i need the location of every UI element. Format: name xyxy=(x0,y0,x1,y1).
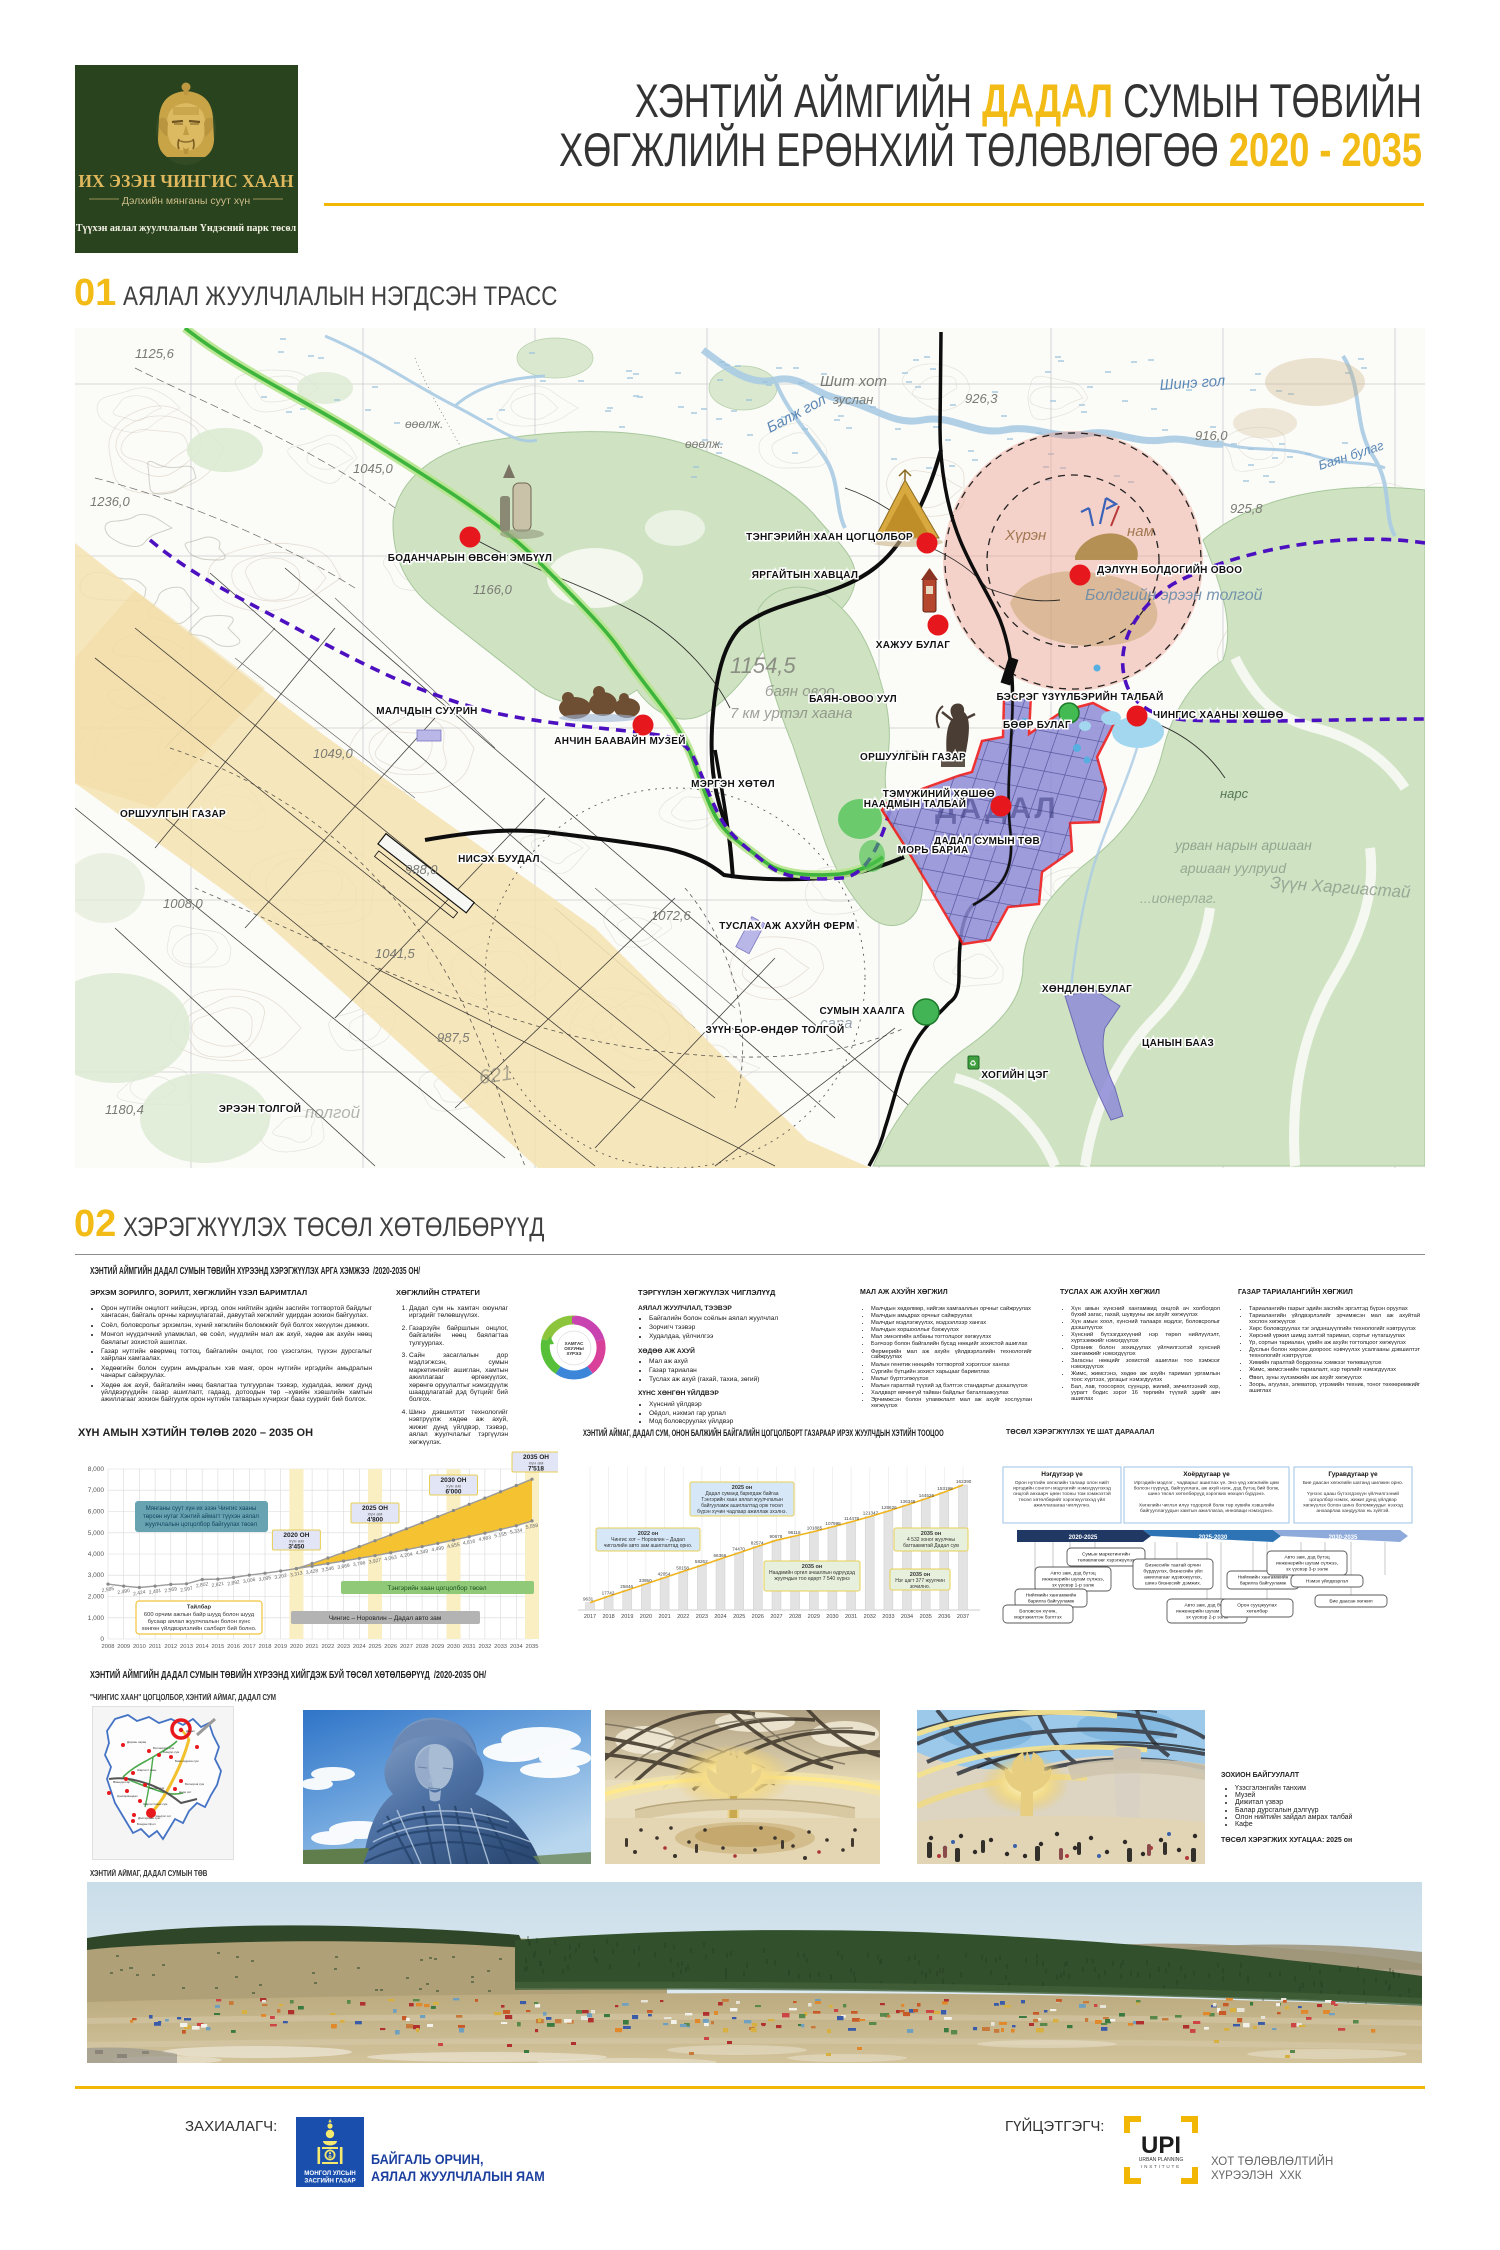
svg-text:полгой: полгой xyxy=(305,1103,361,1122)
svg-text:Нийгмийн хангамжийн: Нийгмийн хангамжийн xyxy=(1026,1592,1077,1599)
svg-text:ТУСЛАХ АЖ АХУЙН ФЕРМ: ТУСЛАХ АЖ АХУЙН ФЕРМ xyxy=(719,919,854,932)
svg-text:бусаар аялал жуулчлалын болон: бусаар аялал жуулчлалын болон хүнс xyxy=(148,1619,251,1625)
svg-text:101885: 101885 xyxy=(807,1526,823,1531)
svg-text:25846: 25846 xyxy=(620,1584,633,1589)
svg-text:2022: 2022 xyxy=(677,1614,689,1620)
svg-text:байгууллагуудын хамтын ажиллаг: байгууллагуудын хамтын ажиллагаа, иннова… xyxy=(1140,1507,1273,1514)
svg-text:2030: 2030 xyxy=(447,1644,460,1650)
svg-text:♻: ♻ xyxy=(969,1059,976,1068)
svg-text:2023: 2023 xyxy=(337,1644,350,1650)
svg-text:анхаарлаа хандуулах нь зүйтэй.: анхаарлаа хандуулах нь зүйтэй. xyxy=(1316,1507,1389,1514)
svg-text:2023: 2023 xyxy=(696,1614,708,1620)
svg-text:Тэнгэрийн хаан аялал жуулчлалы: Тэнгэрийн хаан аялал жуулчлалын xyxy=(701,1496,783,1503)
svg-text:зуслан: зуслан xyxy=(832,392,873,407)
svg-text:ЯРГАЙТЫН ХАВЦАЛ: ЯРГАЙТЫН ХАВЦАЛ xyxy=(752,568,858,581)
svg-text:3,546: 3,546 xyxy=(321,1565,335,1573)
svg-text:2013: 2013 xyxy=(180,1644,193,1650)
svg-text:2020: 2020 xyxy=(640,1614,652,1620)
svg-text:7'518: 7'518 xyxy=(528,1466,544,1473)
svg-text:ХҮРЭЭ: ХҮРЭЭ xyxy=(567,1351,583,1356)
svg-text:Бие даасан хөгжил: Бие даасан хөгжил xyxy=(1329,1599,1372,1605)
svg-text:инженерийн шугам сүлжээ,: инженерийн шугам сүлжээ, xyxy=(1042,1576,1104,1583)
svg-text:2028: 2028 xyxy=(789,1614,801,1620)
svg-text:0: 0 xyxy=(100,1636,104,1643)
svg-text:өөөлж.: өөөлж. xyxy=(685,437,723,451)
svg-text:Цэнхэрмандал: Цэнхэрмандал xyxy=(117,1794,138,1798)
svg-text:1045,0: 1045,0 xyxy=(353,461,394,476)
svg-text:Иргэдийн мэдлэг , чадварыг аши: Иргэдийн мэдлэг , чадварыг ашиглах үе. Э… xyxy=(1134,1479,1279,1486)
svg-text:2027: 2027 xyxy=(770,1614,782,1620)
svg-text:107998: 107998 xyxy=(825,1521,841,1526)
svg-text:2018: 2018 xyxy=(602,1614,614,1620)
svg-text:1008,0: 1008,0 xyxy=(163,896,204,911)
svg-text:барилга байгууламж: барилга байгууламж xyxy=(1240,1580,1287,1587)
svg-text:2,490: 2,490 xyxy=(117,1588,131,1596)
svg-text:2031: 2031 xyxy=(845,1614,857,1620)
svg-text:эх үүсвэр 1-р ээлж: эх үүсвэр 1-р ээлж xyxy=(1052,1583,1095,1589)
svg-text:2026: 2026 xyxy=(752,1614,764,1620)
svg-text:5,334: 5,334 xyxy=(510,1528,524,1536)
svg-text:Дэлхийн мянганы суут хүн: Дэлхийн мянганы суут хүн xyxy=(122,195,250,207)
svg-text:инженерийн шугам сүлжээ,: инженерийн шугам сүлжээ, xyxy=(1276,1560,1338,1567)
svg-text:мэргэжилтэн бэлтгэх: мэргэжилтэн бэлтгэх xyxy=(1014,1615,1062,1621)
svg-text:2034: 2034 xyxy=(510,1644,524,1650)
svg-text:Батноров сум: Батноров сум xyxy=(185,1782,204,1786)
svg-text:2012: 2012 xyxy=(164,1644,177,1650)
svg-text:төсөл хөтөлбөрийг хэрэгжүүлэхэ: төсөл хөтөлбөрийг хэрэгжүүлэхэд үйл xyxy=(1019,1496,1106,1503)
svg-text:Биндэр сум: Биндэр сум xyxy=(163,1750,179,1754)
svg-text:БАЯН-ОВОО УУЛ: БАЯН-ОВОО УУЛ xyxy=(809,694,897,705)
svg-text:96118: 96118 xyxy=(788,1530,801,1535)
svg-text:Шит хот: Шит хот xyxy=(820,373,887,390)
svg-text:Норо хот: Норо хот xyxy=(179,1790,192,1794)
svg-text:66366: 66366 xyxy=(714,1553,727,1558)
svg-text:925,8: 925,8 xyxy=(1230,501,1263,516)
svg-text:3,669: 3,669 xyxy=(337,1563,351,1571)
svg-text:114478: 114478 xyxy=(844,1516,859,1521)
svg-text:987,5: 987,5 xyxy=(437,1030,470,1045)
svg-text:2,892: 2,892 xyxy=(227,1579,241,1587)
svg-text:2024: 2024 xyxy=(353,1644,367,1650)
svg-text:2,569: 2,569 xyxy=(164,1586,178,1594)
svg-text:Мөрөн сум: Мөрөн сум xyxy=(149,1786,164,1790)
svg-text:2035: 2035 xyxy=(920,1614,932,1620)
svg-text:бүрэн хүчин чадлаар ажиллаж эх: бүрэн хүчин чадлаар ажиллаж эхэлнэ. xyxy=(697,1509,787,1515)
svg-text:2022: 2022 xyxy=(321,1644,334,1650)
svg-text:4,000: 4,000 xyxy=(88,1551,105,1558)
svg-text:1049,0: 1049,0 xyxy=(313,746,354,761)
svg-text:INSTITUTE: INSTITUTE xyxy=(1141,2164,1181,2169)
svg-text:Гуравдугаар үе: Гуравдугаар үе xyxy=(1328,1471,1378,1478)
svg-text:СУМЫН ХААЛГА: СУМЫН ХААЛГА xyxy=(819,1006,905,1017)
svg-text:2029: 2029 xyxy=(808,1614,820,1620)
svg-text:2020 ОН: 2020 ОН xyxy=(283,1532,309,1539)
svg-text:2036: 2036 xyxy=(938,1614,950,1620)
svg-text:1180,4: 1180,4 xyxy=(105,1102,144,1117)
svg-text:онцгой анхаарч цөөн тооны том: онцгой анхаарч цөөн тооны том хэмжээтэй xyxy=(1013,1490,1111,1497)
svg-text:6'000: 6'000 xyxy=(445,1489,461,1496)
svg-text:ажиллагаагаа чиглүүлнэ.: ажиллагаагаа чиглүүлнэ. xyxy=(1034,1503,1091,1508)
svg-text:нам: нам xyxy=(1127,523,1154,540)
svg-text:иргэдийн сонгогч мэдлэгийг нэм: иргэдийн сонгогч мэдлэгийг нэмэгдүүлэхэд xyxy=(1013,1485,1111,1492)
svg-text:2021: 2021 xyxy=(658,1614,670,1620)
svg-text:90678: 90678 xyxy=(770,1534,783,1539)
svg-text:URBAN PLANNING: URBAN PLANNING xyxy=(1139,2157,1184,2163)
svg-text:НААДМЫН ТАЛБАЙ: НААДМЫН ТАЛБАЙ xyxy=(864,797,967,810)
svg-text:1125,6: 1125,6 xyxy=(135,346,175,361)
svg-text:3,095: 3,095 xyxy=(258,1575,272,1583)
svg-text:байгууламж ашиглалтад орж төсө: байгууламж ашиглалтад орж төсөл xyxy=(701,1502,783,1509)
svg-text:621: 621 xyxy=(478,1063,514,1089)
svg-text:Түүхэн аялал жуулчлалын Үндэсн: Түүхэн аялал жуулчлалын Үндэсний парк тө… xyxy=(76,223,297,234)
svg-text:бүрдүүлэх, бизнесийн үйл: бүрдүүлэх, бизнесийн үйл xyxy=(1143,1568,1202,1575)
svg-text:төлөвлөгөөг хэрэгжүүлэх: төлөвлөгөөг хэрэгжүүлэх xyxy=(1078,1559,1135,1564)
svg-text:2,597: 2,597 xyxy=(180,1586,194,1594)
svg-text:Болдгийн эрээн толгой: Болдгийн эрээн толгой xyxy=(1085,587,1263,604)
svg-text:Үүнээс цааш бүтээгдэхүүн үйлчи: Үүнээс цааш бүтээгдэхүүн үйлчилгээний xyxy=(1307,1490,1399,1497)
svg-text:2033: 2033 xyxy=(494,1644,507,1650)
svg-text:ажиллагааг идэвхжүүлэх,: ажиллагааг идэвхжүүлэх, xyxy=(1144,1576,1202,1581)
svg-text:2011: 2011 xyxy=(149,1644,161,1650)
svg-text:2025: 2025 xyxy=(369,1644,382,1650)
svg-text:2019: 2019 xyxy=(621,1614,633,1620)
svg-text:2,821: 2,821 xyxy=(211,1581,225,1589)
svg-text:ЦАНЫН БААЗ: ЦАНЫН БААЗ xyxy=(1142,1038,1214,1049)
svg-text:БЭСРЭГ ҮЗҮҮЛБЭРИЙН ТАЛБАЙ: БЭСРЭГ ҮЗҮҮЛБЭРИЙН ТАЛБАЙ xyxy=(996,690,1163,703)
svg-text:42054: 42054 xyxy=(658,1572,671,1577)
svg-text:ОРШУУЛГЫН ГАЗАР: ОРШУУЛГЫН ГАЗАР xyxy=(120,809,226,820)
svg-text:600 орчим ажлын байр шууд боло: 600 орчим ажлын байр шууд болон шууд xyxy=(144,1611,255,1618)
svg-text:МОРЬ БАРИА: МОРЬ БАРИА xyxy=(898,845,969,856)
svg-text:2010: 2010 xyxy=(133,1644,146,1650)
svg-text:барилга байгууламж: барилга байгууламж xyxy=(1028,1598,1075,1605)
svg-text:2029: 2029 xyxy=(431,1644,444,1650)
svg-text:Чингис – Норовлин – Дадал авто: Чингис – Норовлин – Дадал авто зам xyxy=(329,1615,442,1622)
svg-text:2027: 2027 xyxy=(400,1644,413,1650)
svg-text:ИХ ЭЗЭН ЧИНГИС ХААН: ИХ ЭЗЭН ЧИНГИС ХААН xyxy=(78,171,294,191)
svg-text:3,006: 3,006 xyxy=(243,1577,257,1585)
svg-text:2030 ОН: 2030 ОН xyxy=(440,1477,466,1484)
svg-text:2,000: 2,000 xyxy=(88,1594,105,1601)
svg-text:926,3: 926,3 xyxy=(965,391,998,406)
svg-text:2033: 2033 xyxy=(882,1614,894,1620)
svg-text:ХОГИЙН ЦЭГ: ХОГИЙН ЦЭГ xyxy=(981,1068,1048,1081)
svg-text:ДЭЛҮҮН БОЛДОГИЙН ОВОО: ДЭЛҮҮН БОЛДОГИЙН ОВОО xyxy=(1097,563,1242,576)
svg-text:3,000: 3,000 xyxy=(88,1572,105,1579)
svg-text:2030: 2030 xyxy=(826,1614,838,1620)
svg-text:2034: 2034 xyxy=(901,1614,913,1620)
svg-text:2009: 2009 xyxy=(117,1644,130,1650)
svg-text:2035 ОН: 2035 ОН xyxy=(523,1454,549,1461)
svg-text:1154,5: 1154,5 xyxy=(730,653,796,678)
svg-text:Сумын маркетингийн: Сумын маркетингийн xyxy=(1082,1551,1130,1558)
svg-text:2018: 2018 xyxy=(259,1644,272,1650)
svg-text:хөгжүүлэх болон шинэ боломжууд: хөгжүүлэх болон шинэ боломжуудыг нээхэд xyxy=(1303,1502,1403,1508)
svg-text:нарс: нарс xyxy=(1220,786,1249,801)
svg-text:2021: 2021 xyxy=(306,1644,319,1650)
svg-text:82574: 82574 xyxy=(751,1540,764,1545)
svg-text:17742: 17742 xyxy=(602,1590,615,1595)
svg-text:4,204: 4,204 xyxy=(400,1552,414,1560)
svg-text:58262: 58262 xyxy=(695,1559,708,1564)
svg-text:Авто зам, дэд бүтэц: Авто зам, дэд бүтэц xyxy=(1284,1555,1330,1561)
svg-text:2031: 2031 xyxy=(463,1644,476,1650)
svg-text:2020-2025: 2020-2025 xyxy=(1069,1535,1098,1541)
svg-text:ЭРЭЭН ТОЛГОЙ: ЭРЭЭН ТОЛГОЙ xyxy=(219,1102,302,1115)
svg-text:916,0: 916,0 xyxy=(1195,428,1228,443)
svg-text:2008: 2008 xyxy=(102,1644,115,1650)
svg-text:Хоёрдугаар үе: Хоёрдугаар үе xyxy=(1183,1471,1230,1478)
svg-text:Бондан Орол: Бондан Орол xyxy=(137,1822,156,1826)
svg-text:6,000: 6,000 xyxy=(88,1509,105,1516)
svg-text:өөөлж.: өөөлж. xyxy=(405,417,443,431)
svg-text:Хөгжлийн чиглэл илүү тодорхой: Хөгжлийн чиглэл илүү тодорхой болж төр х… xyxy=(1139,1501,1275,1508)
svg-text:8,000: 8,000 xyxy=(88,1466,105,1473)
svg-text:2,585: 2,585 xyxy=(101,1586,115,1594)
svg-text:2014: 2014 xyxy=(196,1644,210,1650)
svg-text:144526: 144526 xyxy=(919,1493,935,1498)
svg-text:2020: 2020 xyxy=(290,1644,303,1650)
svg-text:эх үүсвэр 3-р ээлж: эх үүсвэр 3-р ээлж xyxy=(1286,1567,1329,1573)
svg-text:Орон сууцжуулах: Орон сууцжуулах xyxy=(1237,1603,1277,1609)
svg-text:4,349: 4,349 xyxy=(415,1548,429,1556)
svg-text:ЧИНГИС ХААНЫ ХӨШӨӨ: ЧИНГИС ХААНЫ ХӨШӨӨ xyxy=(1153,710,1284,721)
svg-text:3'450: 3'450 xyxy=(288,1544,304,1551)
svg-text:74470: 74470 xyxy=(732,1547,745,1552)
svg-text:2037: 2037 xyxy=(957,1614,969,1620)
svg-text:БОДАНЧАРЫН ӨВСӨН ЭМБҮҮЛ: БОДАНЧАРЫН ӨВСӨН ЭМБҮҮЛ xyxy=(388,553,552,564)
svg-text:багтаамжтай Дадал сум: багтаамжтай Дадал сум xyxy=(903,1542,959,1549)
svg-text:чиглэлийн авто зам ашиглалтад: чиглэлийн авто зам ашиглалтад орно. xyxy=(604,1542,692,1549)
svg-text:162390: 162390 xyxy=(956,1479,972,1484)
svg-text:болсон гүүрүүд, байгууллага, а: болсон гүүрүүд, байгууллага, аж ахуй нэг… xyxy=(1134,1485,1280,1492)
svg-text:АНЧИН БААВАЙН МУЗЕЙ: АНЧИН БААВАЙН МУЗЕЙ xyxy=(554,734,685,747)
svg-text:Орон нутгийн хөгжлийн талаар о: Орон нутгийн хөгжлийн талаар олон нийт xyxy=(1015,1479,1110,1486)
svg-text:ХАЖУУ БУЛАГ: ХАЖУУ БУЛАГ xyxy=(876,640,950,651)
svg-text:2,802: 2,802 xyxy=(196,1581,210,1589)
svg-text:хөтөлбөр: хөтөлбөр xyxy=(1246,1609,1267,1615)
svg-text:ОРШУУЛГЫН ГАЗАР: ОРШУУЛГЫН ГАЗАР xyxy=(860,752,966,763)
svg-text:2017: 2017 xyxy=(584,1614,596,1620)
svg-text:121347: 121347 xyxy=(863,1511,879,1516)
svg-text:Бизнесийн таатай орчин: Бизнесийн таатай орчин xyxy=(1145,1562,1201,1569)
svg-text:1166,0: 1166,0 xyxy=(473,582,513,597)
svg-text:UPI: UPI xyxy=(1141,2132,1181,2159)
svg-text:50158: 50158 xyxy=(676,1565,689,1570)
svg-text:зочилно.: зочилно. xyxy=(910,1584,930,1590)
svg-text:жуулчдын тоо өдөрт 7 540 хүрнэ: жуулчдын тоо өдөрт 7 540 хүрнэ xyxy=(774,1576,850,1582)
svg-text:128626: 128626 xyxy=(881,1505,897,1510)
svg-text:2025-2030: 2025-2030 xyxy=(1199,1535,1228,1541)
svg-text:цогцолбор нэмэх, жижиг дунд үй: цогцолбор нэмэх, жижиг дунд үйлдвэр xyxy=(1309,1496,1397,1503)
svg-text:МЭРГЭН ХӨТӨЛ: МЭРГЭН ХӨТӨЛ xyxy=(691,779,775,790)
svg-text:төрсөн нутаг Хэнтий аймагт түү: төрсөн нутаг Хэнтий аймагт түүхэн аялал xyxy=(143,1513,259,1520)
svg-text:Мянганы суут хүн их эзэн Чинги: Мянганы суут хүн их эзэн Чингис хааны xyxy=(146,1506,257,1512)
svg-text:ТЭНГЭРИЙН ХААН ЦОГЦОЛБОР: ТЭНГЭРИЙН ХААН ЦОГЦОЛБОР xyxy=(746,530,913,543)
svg-text:2025 ОН: 2025 ОН xyxy=(362,1505,388,1512)
svg-text:Дадал: Дадал xyxy=(186,1729,195,1733)
svg-text:Жаргалт хаан: Жаргалт хаан xyxy=(137,1768,157,1772)
svg-text:3,796: 3,796 xyxy=(353,1560,367,1568)
svg-text:33950: 33950 xyxy=(639,1578,652,1583)
svg-text:4,499: 4,499 xyxy=(431,1545,445,1553)
svg-text:4,816: 4,816 xyxy=(463,1539,477,1547)
svg-text:2019: 2019 xyxy=(274,1644,287,1650)
svg-text:4,983: 4,983 xyxy=(478,1535,492,1543)
svg-text:9631: 9631 xyxy=(583,1597,594,1602)
svg-text:жуулчлалын цогцолбор байгуулах: жуулчлалын цогцолбор байгуулах төсөл xyxy=(145,1521,258,1528)
svg-text:2015: 2015 xyxy=(211,1644,224,1650)
svg-text:7,000: 7,000 xyxy=(88,1487,105,1494)
svg-text:Боловсон хүчин,: Боловсон хүчин, xyxy=(1019,1609,1057,1615)
svg-text:7 км уртэл хаана: 7 км уртэл хаана xyxy=(730,705,853,722)
svg-text:урван нарын аршаан: урван нарын аршаан xyxy=(1174,837,1312,853)
svg-text:Хүрэн: Хүрэн xyxy=(1004,527,1046,544)
svg-text:5,000: 5,000 xyxy=(88,1530,105,1537)
svg-text:5,155: 5,155 xyxy=(494,1531,508,1539)
svg-text:2032: 2032 xyxy=(864,1614,876,1620)
svg-text:НИСЭХ БУУДАЛ: НИСЭХ БУУДАЛ xyxy=(458,854,540,865)
svg-text:Дархан хараа: Дархан хараа xyxy=(127,1740,146,1744)
svg-text:2030-2035: 2030-2035 xyxy=(1329,1535,1358,1541)
svg-text:4'800: 4'800 xyxy=(367,1517,383,1524)
svg-text:ХӨНДЛӨН БУЛАГ: ХӨНДЛӨН БУЛАГ xyxy=(1042,984,1132,995)
svg-text:МАЛЧДЫН СУУРИН: МАЛЧДЫН СУУРИН xyxy=(376,706,477,717)
svg-text:Наадмийн оргил ачааллын өдрүүд: Наадмийн оргил ачааллын өдрүүдэд xyxy=(769,1569,855,1576)
svg-text:Өмнөдэлгэр: Өмнөдэлгэр xyxy=(113,1780,130,1784)
svg-text:МОНГОЛ УЛСЫН: МОНГОЛ УЛСЫН xyxy=(304,2170,356,2177)
svg-text:ЗАСГИЙН ГАЗАР: ЗАСГИЙН ГАЗАР xyxy=(304,2177,355,2185)
svg-text:...ионерлаг.: ...ионерлаг. xyxy=(1140,890,1217,906)
svg-text:Нэмэх үйлдвэрлэл: Нэмэх үйлдвэрлэл xyxy=(1306,1578,1348,1585)
svg-text:хөнгөн үйлдвэрлэлийн салбарт б: хөнгөн үйлдвэрлэлийн салбарт бий болно. xyxy=(142,1625,257,1632)
svg-text:2,491: 2,491 xyxy=(148,1588,162,1596)
svg-text:988,0: 988,0 xyxy=(405,862,438,877)
svg-text:шинэ төсөл хөтөлбөрүүд хэрэгжи: шинэ төсөл хөтөлбөрүүд хэрэгжих нөхцөл б… xyxy=(1148,1491,1265,1497)
svg-text:2024: 2024 xyxy=(714,1614,726,1620)
svg-text:2025: 2025 xyxy=(733,1614,745,1620)
svg-text:1072,6: 1072,6 xyxy=(651,908,692,923)
svg-text:2032: 2032 xyxy=(478,1644,491,1650)
svg-text:136346: 136346 xyxy=(900,1499,916,1504)
svg-text:3,202: 3,202 xyxy=(274,1573,288,1581)
svg-text:Авто зам, дэд бүтэц: Авто зам, дэд бүтэц xyxy=(1050,1571,1096,1577)
svg-text:Тайлбар: Тайлбар xyxy=(187,1604,212,1611)
svg-text:2035: 2035 xyxy=(526,1644,539,1650)
svg-text:БӨӨР БУЛАГ: БӨӨР БУЛАГ xyxy=(1003,720,1071,731)
svg-text:ЗҮҮН БОР-ӨНДӨР ТОЛГОЙ: ЗҮҮН БОР-ӨНДӨР ТОЛГОЙ xyxy=(706,1023,845,1036)
svg-text:Чандгат хот: Чандгат хот xyxy=(155,1814,172,1818)
svg-text:1041,5: 1041,5 xyxy=(375,946,416,961)
svg-text:шинэ бизнесийг дэмжих.: шинэ бизнесийг дэмжих. xyxy=(1145,1580,1201,1587)
svg-text:2017: 2017 xyxy=(243,1644,256,1650)
svg-text:Бие даасан хөгжлийн шатанд шил: Бие даасан хөгжлийн шатанд шилжин орно. xyxy=(1303,1479,1403,1486)
svg-text:2026: 2026 xyxy=(384,1644,397,1650)
svg-text:Баян-Адрага сум: Баян-Адрага сум xyxy=(175,1759,199,1763)
svg-text:Дадал суманд баригдаж байгаа: Дадал суманд баригдаж байгаа xyxy=(705,1490,778,1497)
svg-text:1,000: 1,000 xyxy=(88,1615,105,1622)
svg-text:4,063: 4,063 xyxy=(384,1555,398,1563)
svg-text:Жаргалтхаан сум: Жаргалтхаан сум xyxy=(143,1802,167,1806)
svg-text:Нэгдугээр үе: Нэгдугээр үе xyxy=(1041,1471,1083,1478)
svg-text:1236,0: 1236,0 xyxy=(90,494,131,509)
svg-text:2016: 2016 xyxy=(227,1644,240,1650)
svg-text:2028: 2028 xyxy=(416,1644,429,1650)
svg-text:Тэнгэрийн хаан цогцолбор төсөл: Тэнгэрийн хаан цогцолбор төсөл xyxy=(387,1584,486,1592)
svg-text:153198: 153198 xyxy=(937,1486,953,1491)
